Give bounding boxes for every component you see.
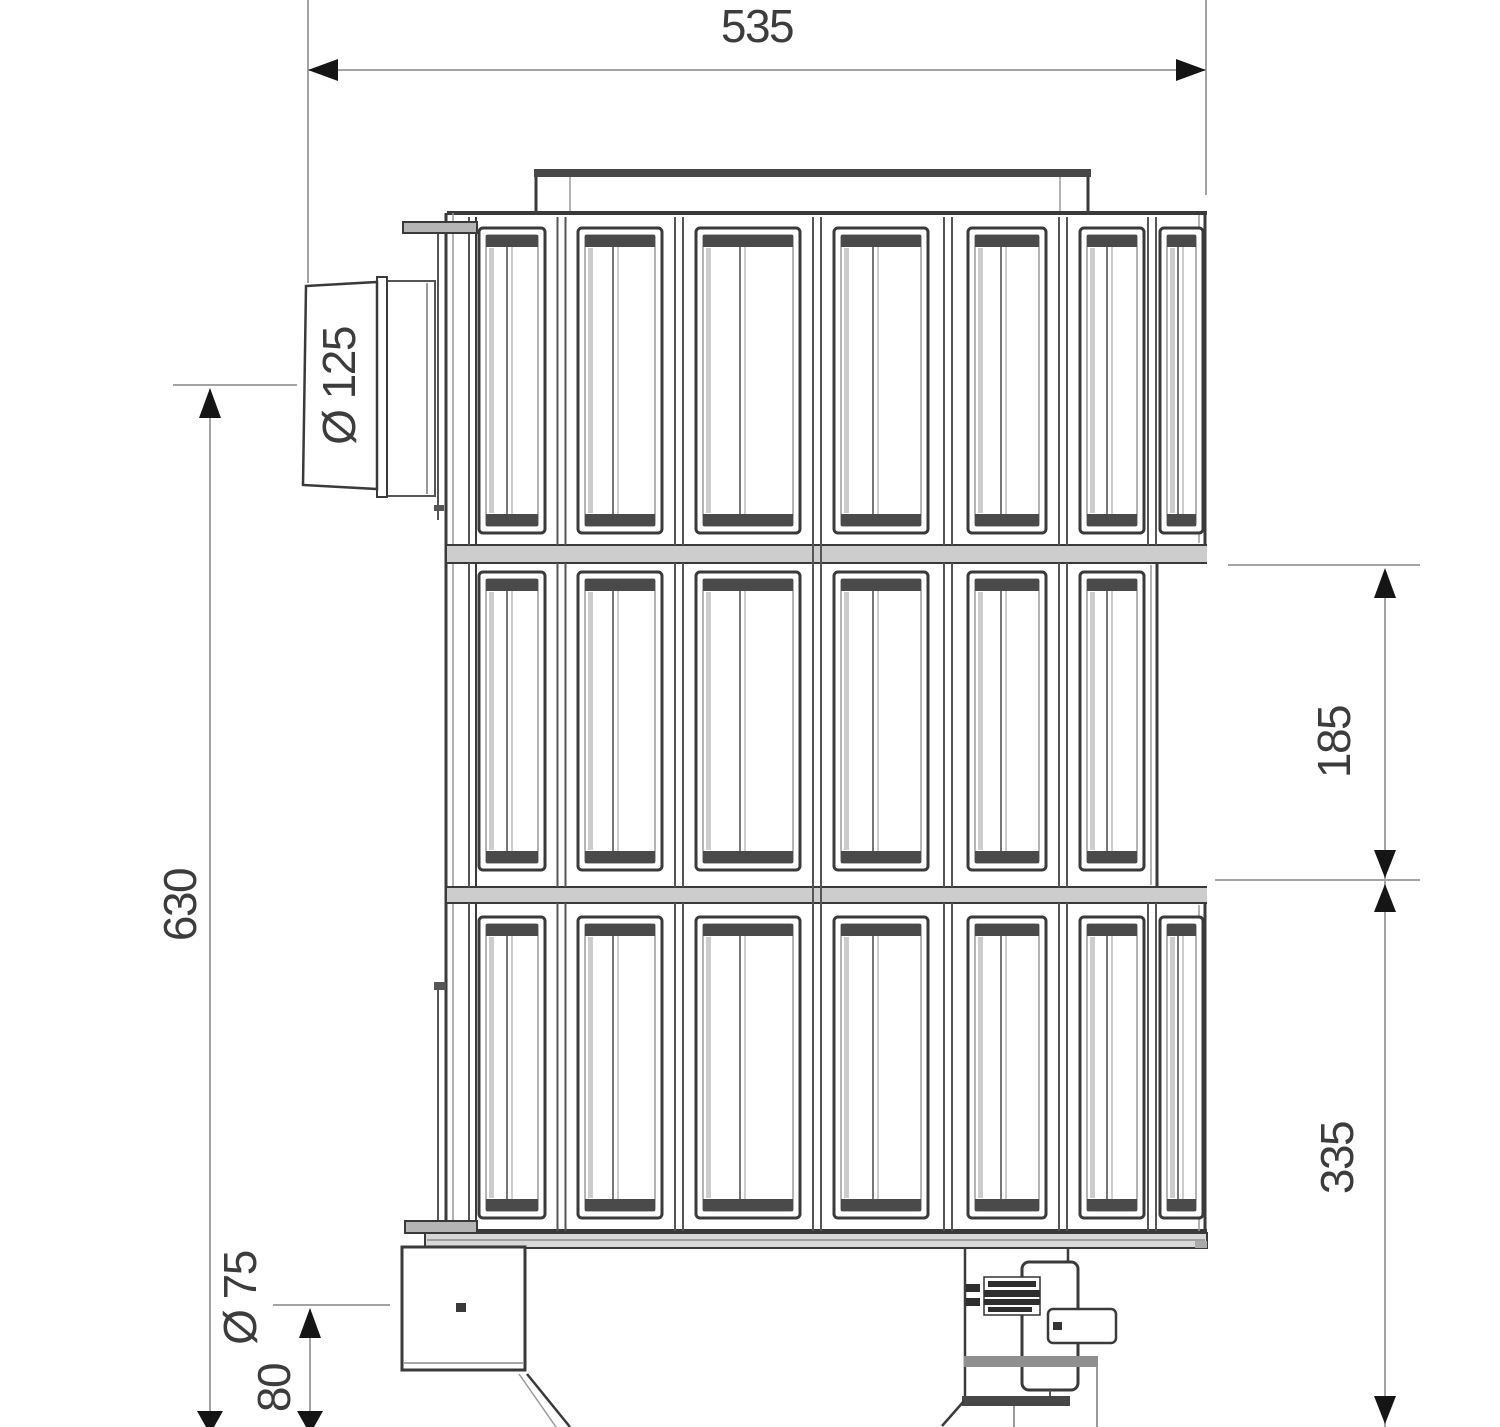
drain-valve-assembly [942,1248,1116,1427]
bottom-left-tab [405,1221,477,1233]
segment-cell [479,917,545,1218]
segment-cell [696,572,800,870]
segment-cell [968,917,1046,1218]
valve-rib-4 [988,1307,1032,1312]
dim-label-overall-height: 630 [154,869,206,941]
segment-cell [968,572,1046,870]
segment-cell [1080,572,1144,870]
arrow-335-top [1374,884,1396,912]
segments-layer [469,217,1203,1231]
body-bottom-edge [447,1229,1207,1232]
dimension-lower-section: 335 [1311,884,1396,1424]
valve-base-bar [962,1396,1070,1406]
dim-label-drain-height: 80 [248,1364,300,1412]
panel-weld-mark-upper [434,505,444,511]
top-plate-bar [534,169,1091,177]
arrow-185-bottom [1374,850,1396,878]
base-skirt-diagonal [527,1374,570,1427]
boiler-side-view-drawing: 535 630 185 335 80 Ø 75 Ø 125 [0,0,1500,1427]
segment-cell [696,917,800,1218]
segment-cell [479,228,545,533]
base-skirt-diagonal-inner [519,1374,556,1427]
segment-cell [578,228,662,533]
arrow-80-top [299,1308,321,1338]
body-top-edge [447,211,1207,215]
flue-flange [377,277,387,497]
arrow-535-right [1176,59,1206,81]
dimension-segment-pitch: 185 [1215,565,1420,1427]
joint-band-1 [447,545,1207,563]
dim-label-flue-diameter: Ø 125 [313,327,365,445]
segment-cell [578,572,662,870]
valve-nub-lower [966,1298,980,1306]
technical-drawing-page: 535 630 185 335 80 Ø 75 Ø 125 [0,0,1500,1427]
dim-label-overall-width: 535 [721,0,793,52]
valve-nub-upper [966,1284,980,1292]
segment-cell [696,228,800,533]
segment-cell [834,228,928,533]
segment-row [469,563,1144,887]
arrow-630-bottom [197,1411,223,1427]
bottom-plate [425,1233,1207,1248]
dim-label-segment-pitch: 185 [1308,706,1360,778]
arrow-185-top [1374,568,1396,598]
base-plate-right-step [1195,1241,1207,1248]
valve-rib-1 [988,1281,1036,1287]
dim-label-return-diameter: Ø 75 [214,1251,266,1345]
segment-cell [968,228,1046,533]
segment-cell [834,572,928,870]
segment-cell-partial [1160,228,1203,533]
arrow-335-bottom [1374,1396,1396,1424]
arrow-80-bottom [297,1411,323,1427]
dimension-drain-height: 80 Ø 75 [214,1251,390,1427]
flue-transition [387,281,435,496]
valve-rib-3 [984,1299,1040,1305]
drain-pipe-plug [1053,1322,1062,1330]
arrow-630-top [199,388,221,418]
valve-rib-2 [984,1290,1040,1297]
segment-cell [1080,228,1144,533]
top-left-tab [403,222,477,233]
segment-row [469,903,1203,1231]
segment-cell [578,917,662,1218]
segment-cell [479,572,545,870]
joint-band-2 [447,887,1207,903]
segment-cell-partial [1160,917,1203,1218]
segment-cell [834,917,928,1218]
return-connection-box [402,1247,570,1427]
panel-weld-mark-lower [434,982,446,990]
valve-cross-bar [964,1356,1098,1367]
dim-label-lower-section: 335 [1311,1122,1363,1194]
arrow-535-left [308,59,338,81]
segment-cell [1080,917,1144,1218]
base-diagonal-mid [942,1401,964,1426]
segment-row [469,217,1203,545]
top-plate [534,169,1091,211]
return-box-plug [456,1303,466,1312]
